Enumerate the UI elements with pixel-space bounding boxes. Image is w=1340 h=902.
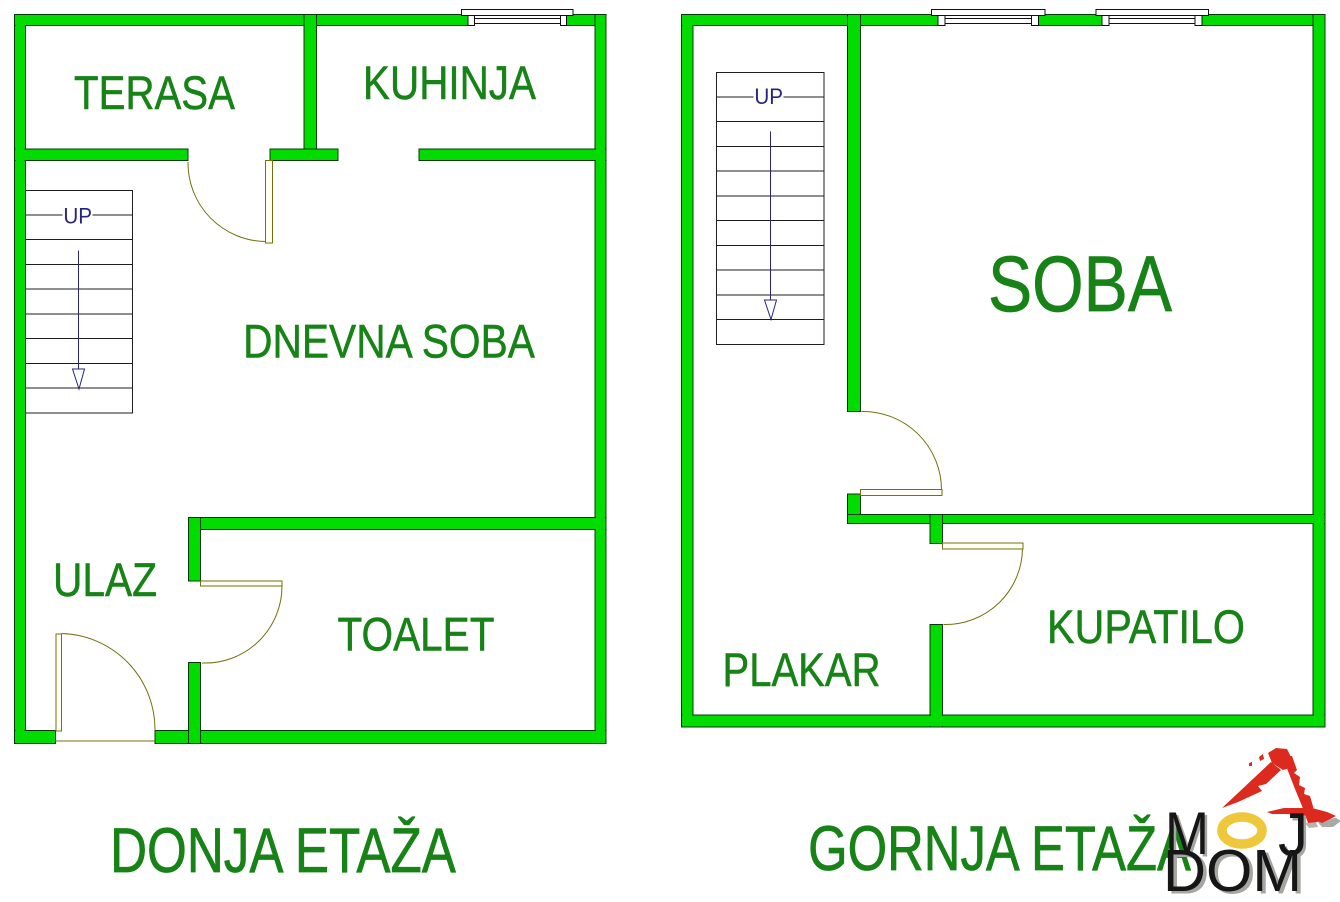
svg-text:TOALET: TOALET [338, 609, 495, 661]
svg-text:UP: UP [754, 84, 783, 109]
svg-text:ULAZ: ULAZ [53, 554, 157, 606]
svg-text:KUPATILO: KUPATILO [1047, 602, 1245, 654]
svg-text:SOBA: SOBA [988, 241, 1172, 329]
svg-text:KUHINJA: KUHINJA [363, 57, 537, 110]
svg-text:PLAKAR: PLAKAR [722, 644, 880, 697]
svg-text:DOM: DOM [1163, 838, 1302, 902]
svg-text:UP: UP [63, 204, 92, 229]
svg-text:TERASA: TERASA [74, 67, 236, 120]
svg-text:DONJA ETAŽA: DONJA ETAŽA [110, 816, 456, 886]
svg-text:GORNJA ETAŽA: GORNJA ETAŽA [808, 814, 1191, 884]
svg-text:DNEVNA SOBA: DNEVNA SOBA [243, 316, 535, 368]
